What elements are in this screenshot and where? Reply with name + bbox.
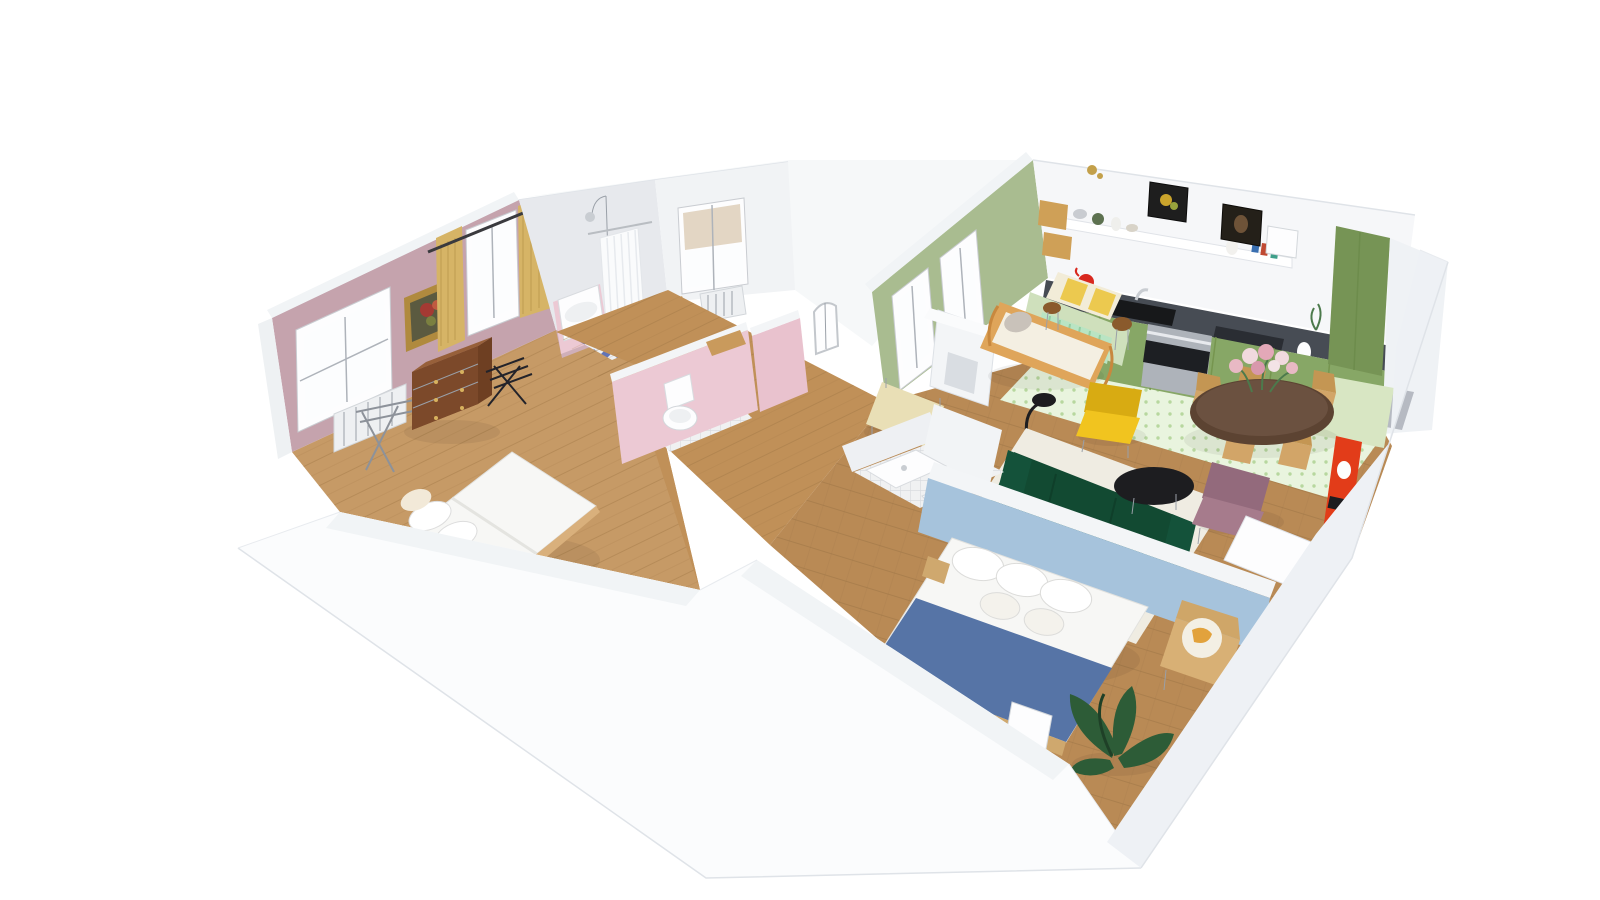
curtain-left xyxy=(436,226,465,352)
framed-picture-flowers[interactable] xyxy=(1148,182,1188,222)
floorplan-canvas[interactable] xyxy=(0,0,1600,900)
framed-picture-white[interactable] xyxy=(1266,226,1298,258)
arched-window[interactable] xyxy=(814,303,838,354)
framed-picture-portrait[interactable] xyxy=(1221,204,1262,246)
white-jug xyxy=(1337,461,1351,479)
bathroom-window[interactable] xyxy=(678,198,748,294)
